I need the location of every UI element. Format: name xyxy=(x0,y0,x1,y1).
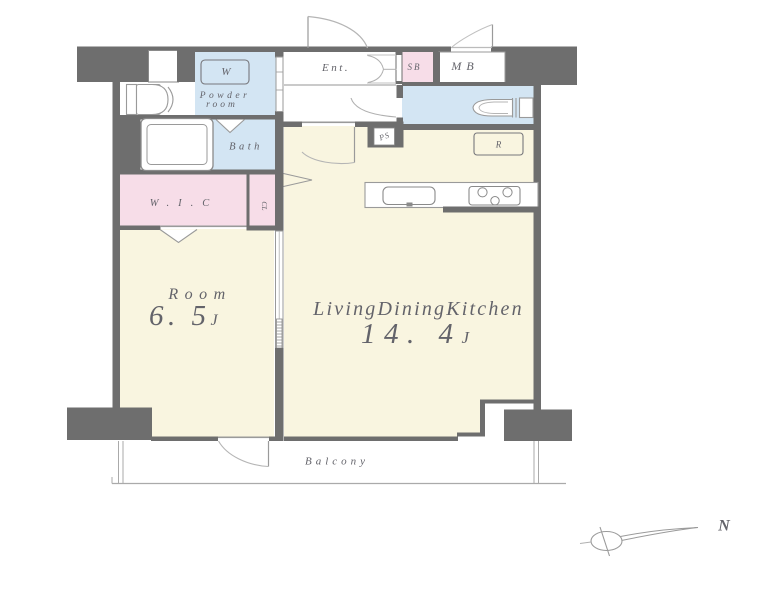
svg-text:W.I.C: W.I.C xyxy=(150,198,219,209)
svg-text:SB: SB xyxy=(408,62,422,72)
svg-text:MB: MB xyxy=(450,59,478,73)
svg-text:R: R xyxy=(495,140,502,150)
svg-text:Bath: Bath xyxy=(229,142,263,153)
svg-text:N: N xyxy=(717,518,731,535)
svg-text:W: W xyxy=(221,66,231,78)
svg-text:14. 4J: 14. 4J xyxy=(361,318,478,350)
svg-text:LivingDiningKitchen: LivingDiningKitchen xyxy=(312,298,524,320)
svg-text:Ent.: Ent. xyxy=(321,62,350,74)
svg-text:CL: CL xyxy=(260,201,269,210)
svg-text:room: room xyxy=(206,100,238,110)
svg-text:Balcony: Balcony xyxy=(305,456,369,468)
